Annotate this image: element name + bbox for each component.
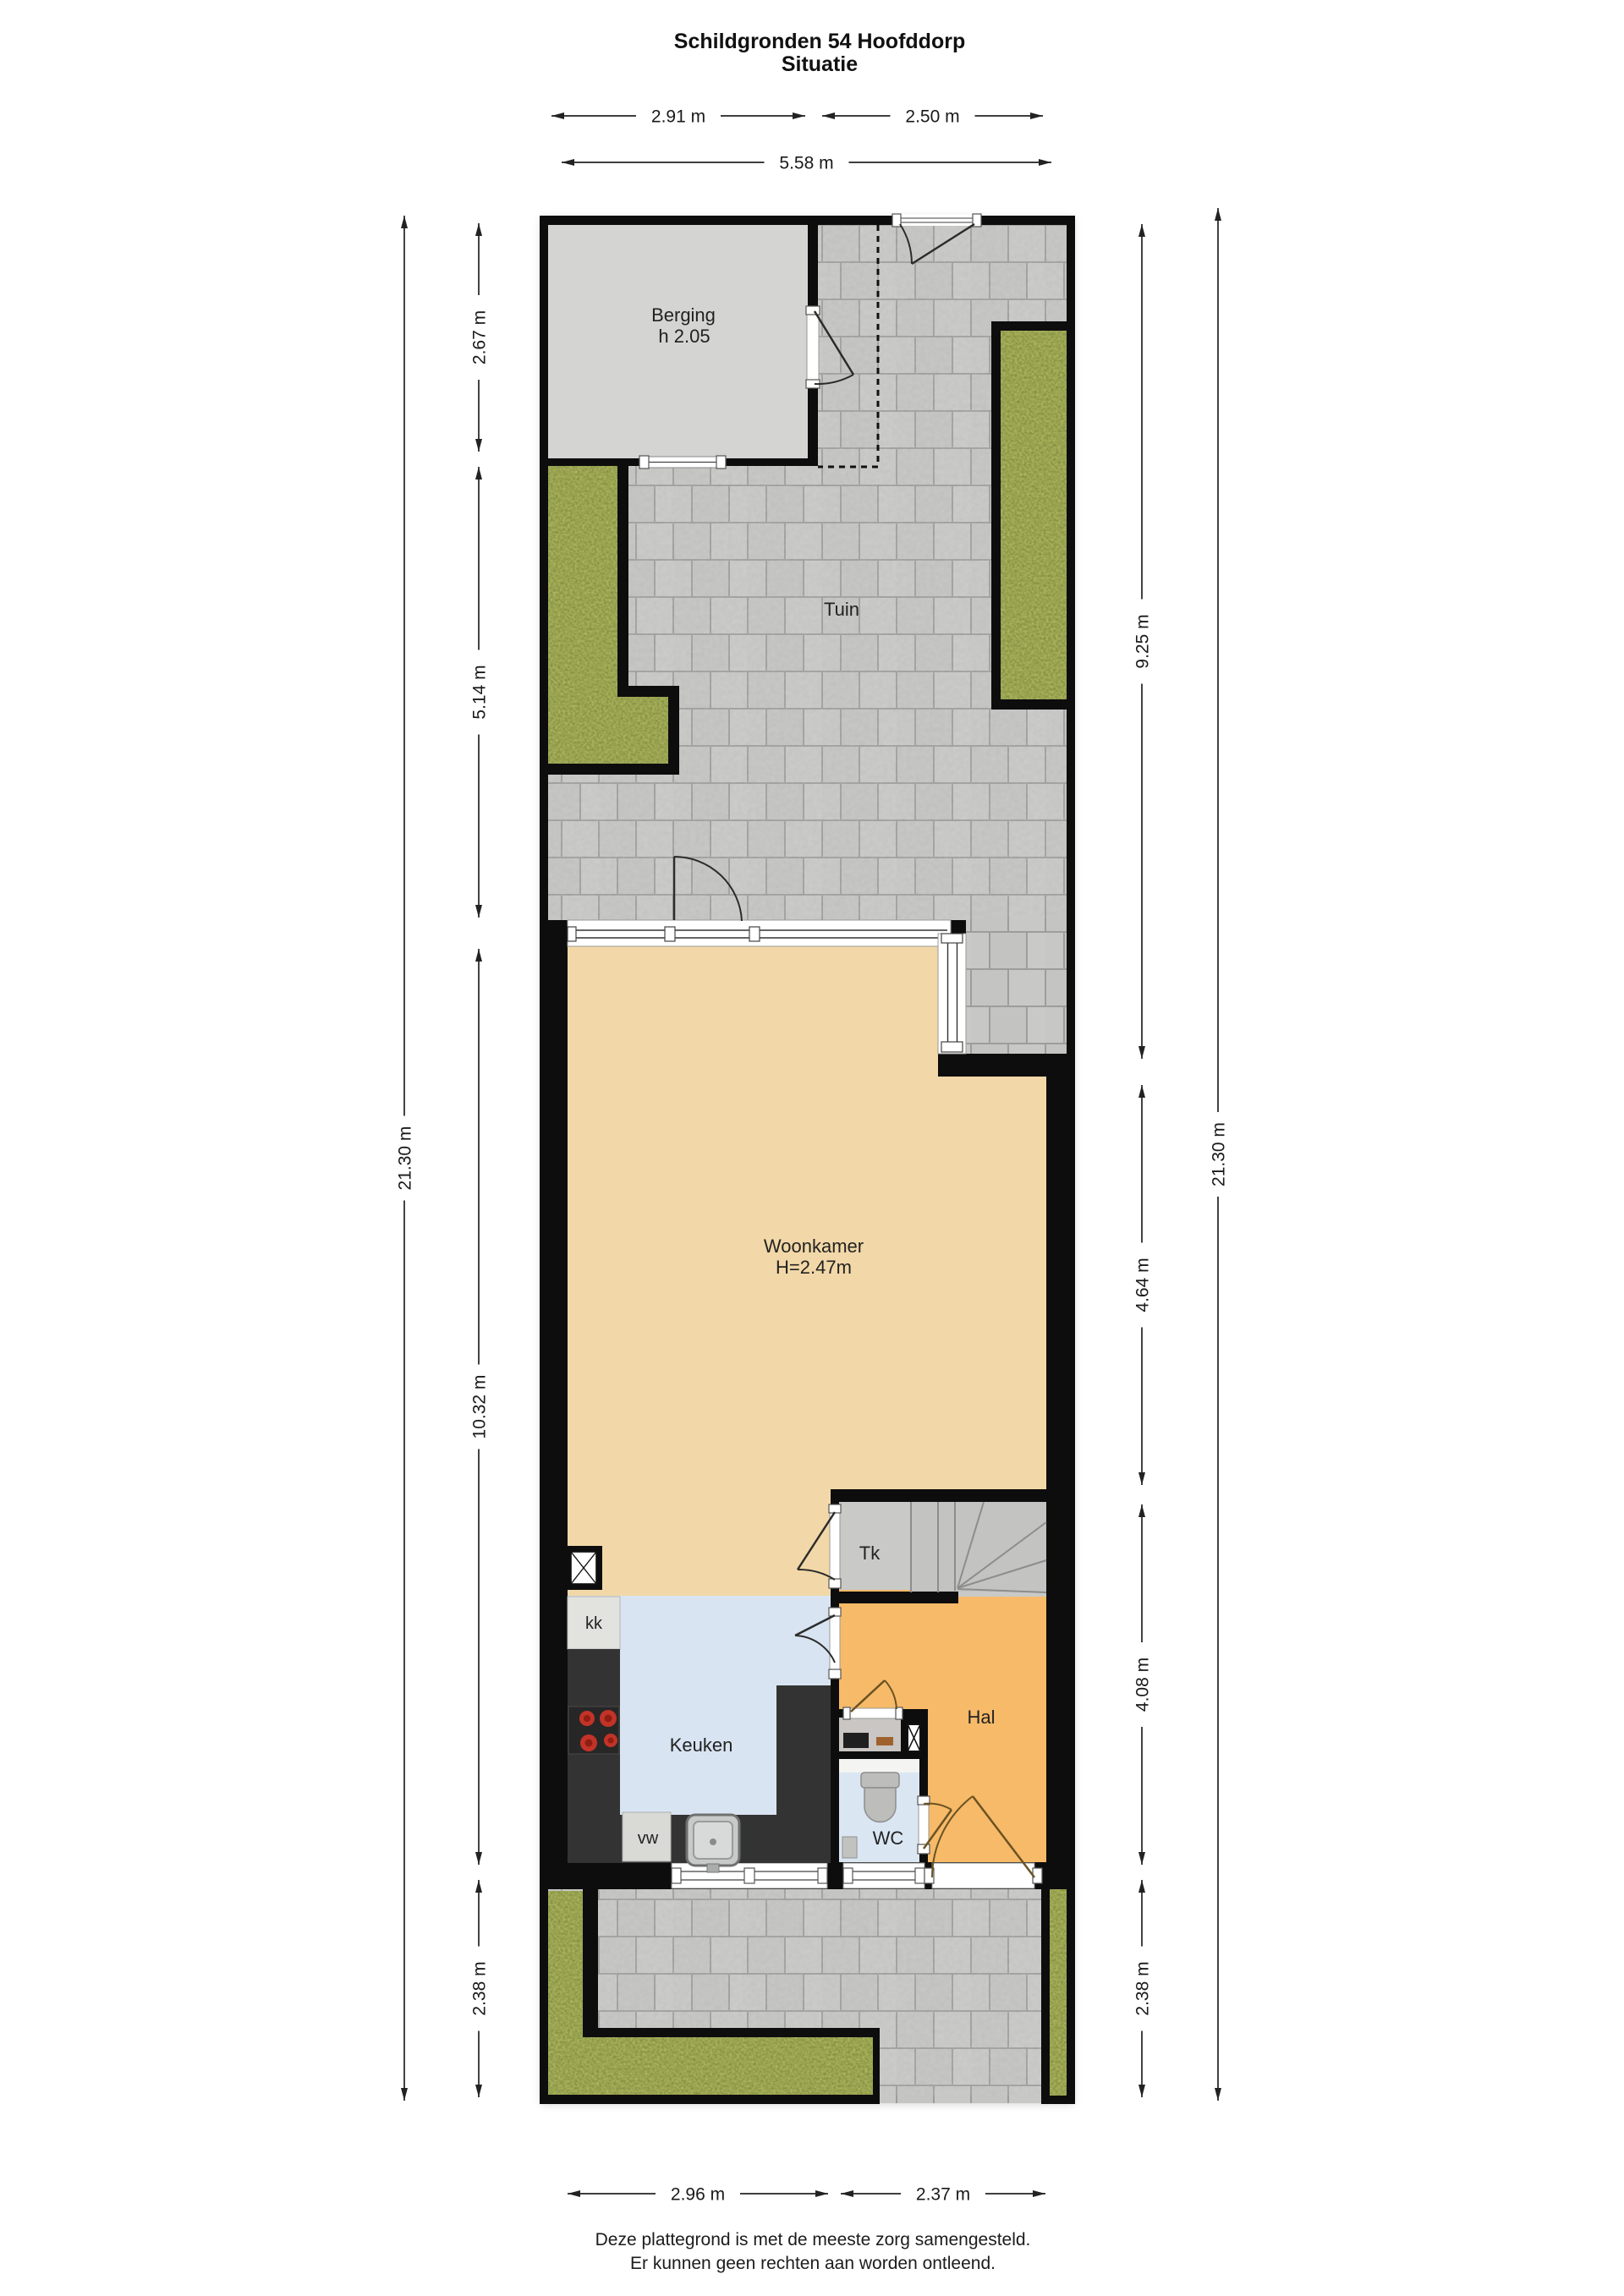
svg-text:Deze plattegrond is met de mee: Deze plattegrond is met de meeste zorg s… [595,2230,1031,2249]
svg-text:Hal: Hal [967,1707,995,1728]
svg-text:h 2.05: h 2.05 [658,326,710,347]
svg-text:Keuken: Keuken [670,1734,733,1756]
svg-text:21.30 m: 21.30 m [396,1126,415,1191]
svg-text:21.30 m: 21.30 m [1210,1122,1229,1186]
svg-text:2.50 m: 2.50 m [905,107,959,127]
svg-text:10.32 m: 10.32 m [470,1375,490,1439]
svg-text:2.91 m: 2.91 m [651,107,705,127]
svg-text:Tuin: Tuin [824,599,859,620]
svg-text:2.38 m: 2.38 m [470,1961,490,2015]
svg-text:5.58 m: 5.58 m [779,154,833,173]
svg-text:2.37 m: 2.37 m [916,2185,970,2205]
svg-text:WC: WC [873,1827,904,1849]
svg-text:H=2.47m: H=2.47m [776,1257,852,1278]
svg-text:4.08 m: 4.08 m [1133,1658,1153,1712]
svg-text:Berging: Berging [651,304,716,326]
svg-text:2.38 m: 2.38 m [1133,1961,1153,2015]
svg-text:Schildgronden 54 Hoofddorp: Schildgronden 54 Hoofddorp [674,30,965,53]
svg-text:Situatie: Situatie [782,52,858,76]
svg-text:Tk: Tk [859,1543,881,1564]
svg-text:4.64 m: 4.64 m [1133,1258,1153,1312]
svg-text:Er kunnen geen rechten aan wor: Er kunnen geen rechten aan worden ontlee… [630,2254,996,2273]
svg-text:5.14 m: 5.14 m [470,665,490,719]
svg-text:9.25 m: 9.25 m [1133,614,1153,668]
svg-text:Woonkamer: Woonkamer [764,1236,864,1257]
svg-text:vw: vw [638,1829,659,1848]
svg-text:kk: kk [585,1614,603,1633]
svg-text:2.96 m: 2.96 m [671,2185,725,2205]
svg-text:2.67 m: 2.67 m [470,310,490,364]
